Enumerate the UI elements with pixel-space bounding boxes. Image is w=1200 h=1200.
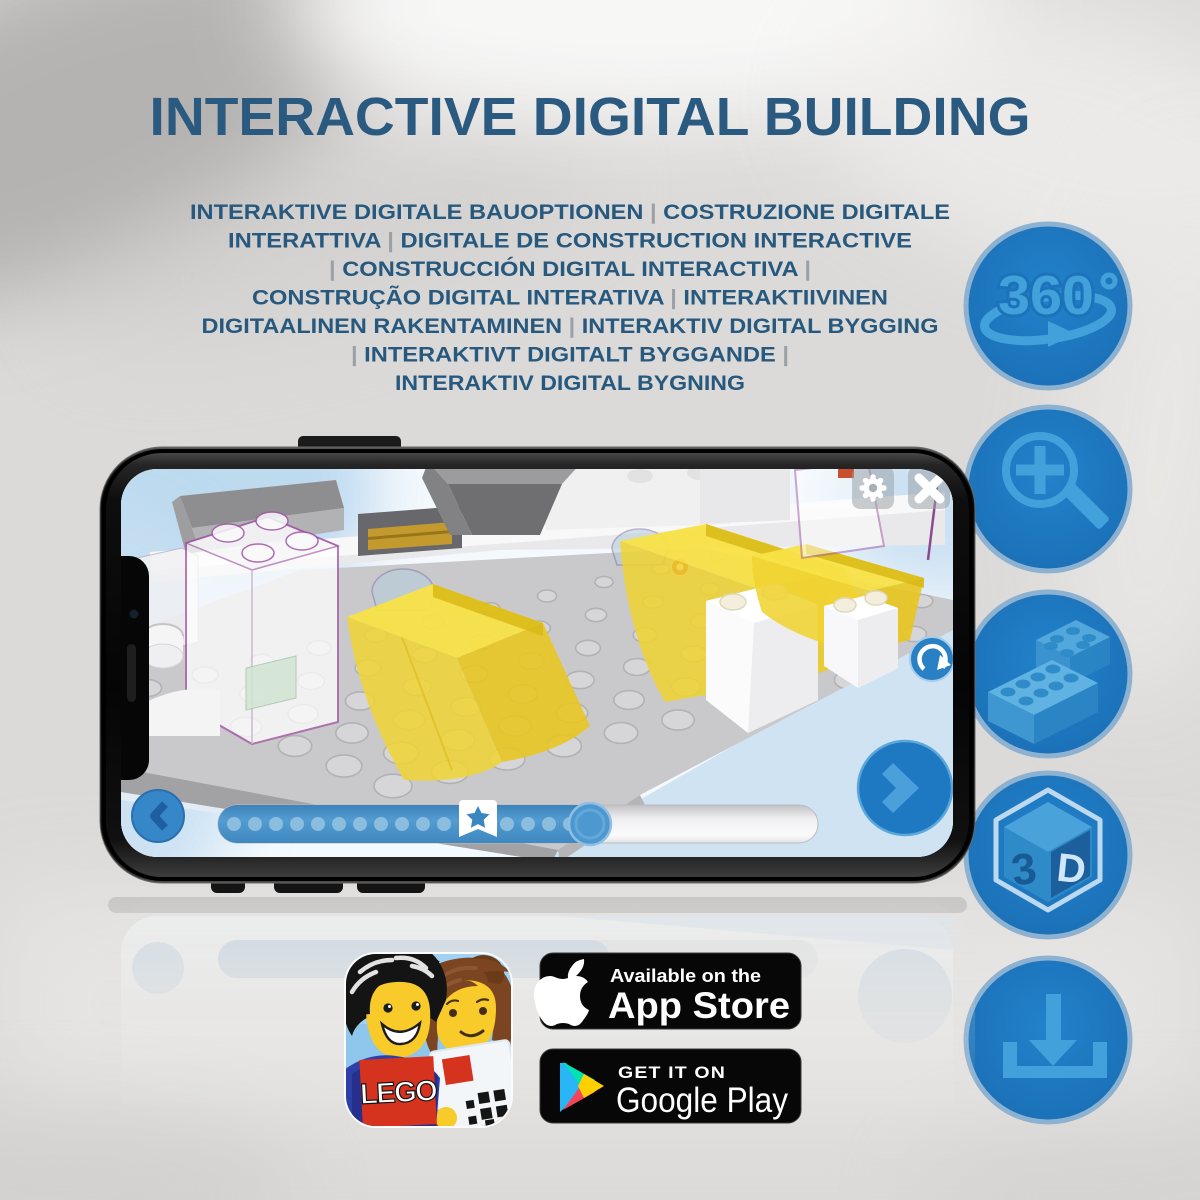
svg-text:GET IT ON: GET IT ON (618, 1063, 726, 1082)
svg-text:Google Play: Google Play (616, 1081, 788, 1120)
svg-text:INTERAKTIV DIGITAL BYGNING: INTERAKTIV DIGITAL BYGNING (395, 371, 745, 395)
svg-text:App Store: App Store (608, 985, 790, 1026)
svg-text:Available on the: Available on the (610, 965, 761, 986)
svg-text:DIGITAALINEN RAKENTAMINEN | IN: DIGITAALINEN RAKENTAMINEN | INTERAKTIV D… (202, 314, 939, 338)
svg-text:INTERAKTIVE DIGITALE BAUOPTION: INTERAKTIVE DIGITALE BAUOPTIONEN | COSTR… (190, 200, 950, 224)
svg-text:CONSTRUÇÃO DIGITAL INTERATIVA: CONSTRUÇÃO DIGITAL INTERATIVA | INTERAKT… (252, 285, 888, 310)
svg-text:D: D (1055, 846, 1088, 893)
svg-text:| CONSTRUCCIÓN DIGITAL INTERAC: | CONSTRUCCIÓN DIGITAL INTERACTIVA | (329, 256, 811, 281)
svg-text:360: 360 (998, 264, 1094, 326)
svg-text:INTERATTIVA | DIGITALE DE CONS: INTERATTIVA | DIGITALE DE CONSTRUCTION I… (228, 229, 912, 253)
svg-text:INTERACTIVE DIGITAL BUILDING: INTERACTIVE DIGITAL BUILDING (150, 87, 1031, 147)
svg-text:| INTERAKTIVT DIGITALT BYGGAND: | INTERAKTIVT DIGITALT BYGGANDE | (351, 343, 789, 367)
svg-text:LEGO: LEGO (359, 1075, 438, 1111)
